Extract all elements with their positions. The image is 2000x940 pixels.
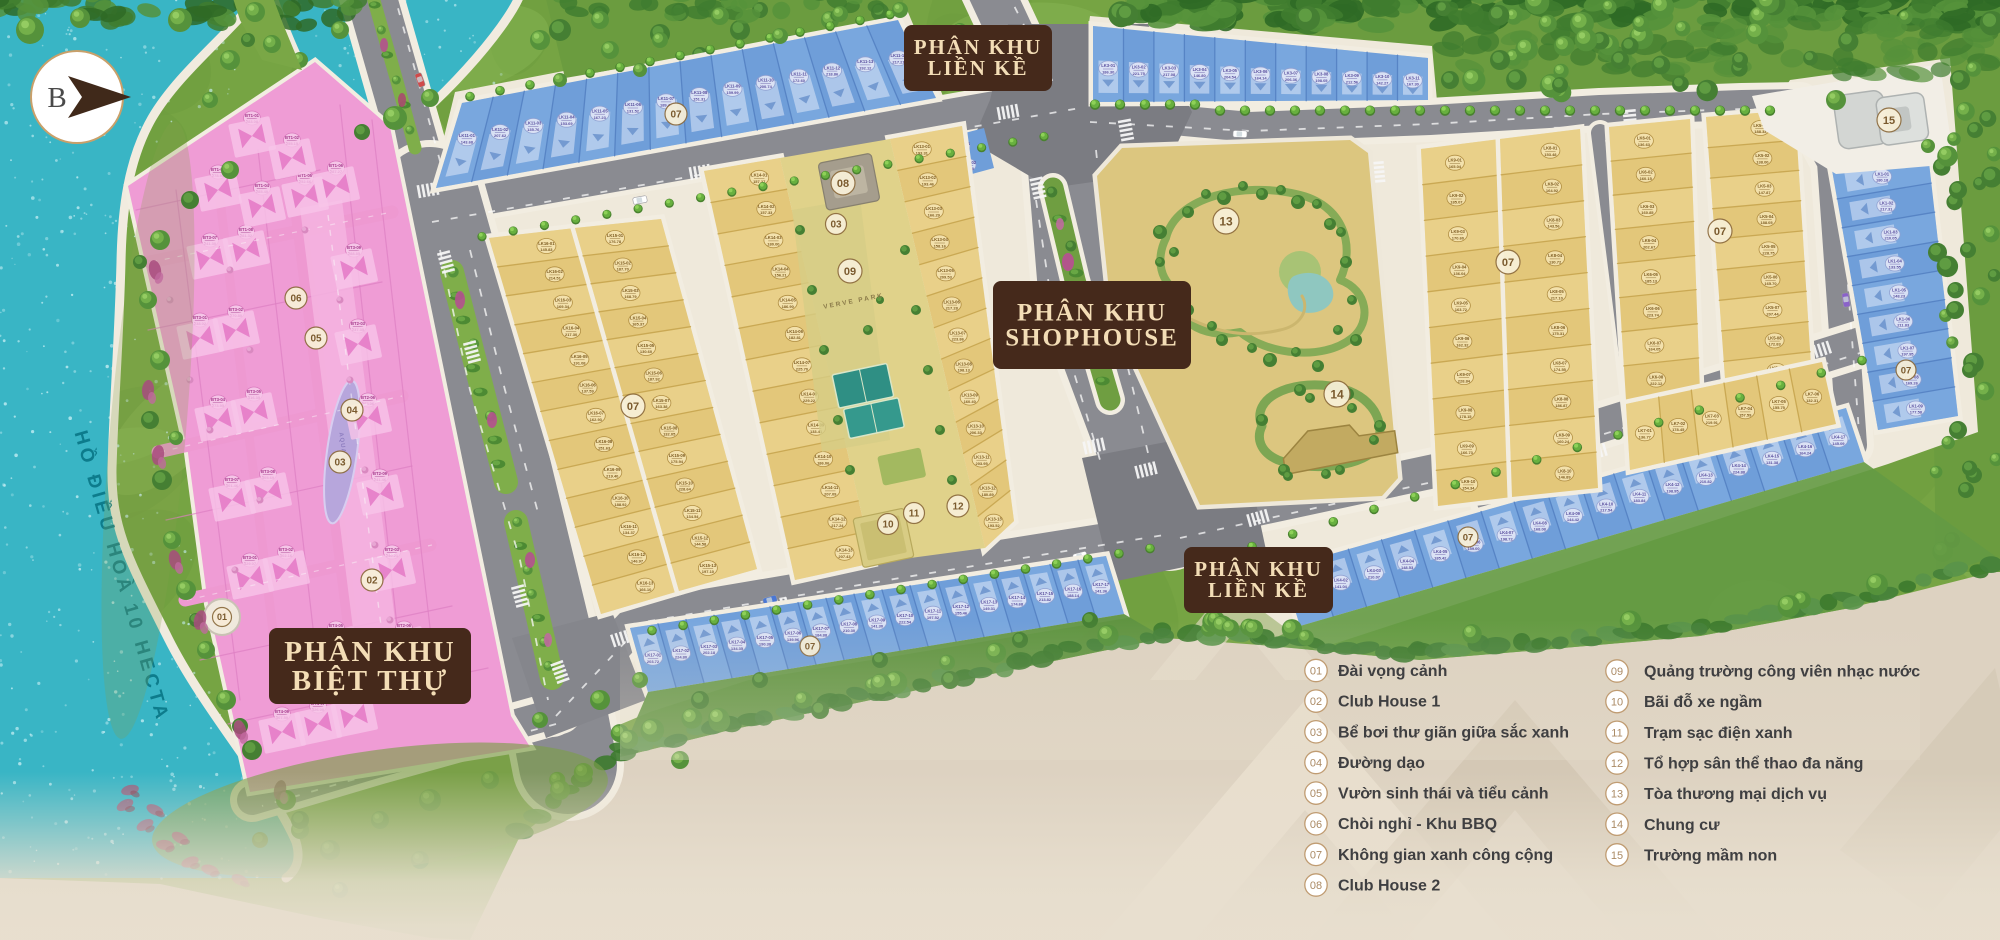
- svg-text:LK9-03: LK9-03: [1451, 229, 1466, 234]
- svg-text:209.53: 209.53: [940, 275, 953, 280]
- svg-text:LK4-13: LK4-13: [1699, 473, 1714, 478]
- svg-text:198.95: 198.95: [1666, 489, 1679, 494]
- svg-text:191.08: 191.08: [573, 360, 586, 365]
- svg-text:LK16-01: LK16-01: [538, 241, 555, 246]
- svg-text:LK16-03: LK16-03: [555, 297, 572, 302]
- svg-text:225.70: 225.70: [796, 367, 809, 372]
- svg-text:147.87: 147.87: [1758, 190, 1771, 195]
- svg-text:Quảng trường công viên nhạc nư: Quảng trường công viên nhạc nước: [1644, 664, 1920, 681]
- svg-text:LK3-08: LK3-08: [1314, 72, 1329, 77]
- svg-text:LK6-07: LK6-07: [1647, 340, 1662, 345]
- svg-text:144.42: 144.42: [1567, 517, 1580, 522]
- svg-text:LK14-01: LK14-01: [751, 173, 768, 178]
- svg-text:141.04: 141.04: [1335, 584, 1348, 589]
- svg-text:136.63: 136.63: [1638, 142, 1651, 147]
- svg-text:192.12: 192.12: [859, 66, 872, 71]
- svg-text:07: 07: [670, 110, 682, 121]
- svg-text:LK4-11: LK4-11: [1633, 492, 1647, 497]
- svg-text:193.46: 193.46: [922, 182, 935, 187]
- svg-text:LK5-03: LK5-03: [1758, 184, 1773, 189]
- svg-text:LK13-13: LK13-13: [985, 517, 1002, 522]
- svg-text:Đường dạo: Đường dạo: [1338, 755, 1425, 772]
- svg-text:182.81: 182.81: [789, 335, 802, 340]
- svg-text:LK4-09: LK4-09: [1566, 511, 1581, 516]
- svg-text:160.85: 160.85: [1641, 210, 1654, 215]
- svg-text:LK4-05: LK4-05: [1433, 549, 1448, 554]
- svg-text:LK15-01: LK15-01: [607, 233, 624, 238]
- svg-text:198.13: 198.13: [958, 368, 971, 373]
- svg-text:136.04: 136.04: [1453, 271, 1466, 276]
- svg-text:164.24: 164.24: [1799, 451, 1812, 456]
- svg-text:BT2-09: BT2-09: [373, 471, 388, 476]
- svg-text:LK11-01: LK11-01: [459, 133, 476, 138]
- svg-text:LK6-08: LK6-08: [1649, 374, 1664, 379]
- svg-text:LK5-05: LK5-05: [1762, 244, 1777, 249]
- svg-text:163.72: 163.72: [1455, 307, 1468, 312]
- svg-text:163.38: 163.38: [655, 404, 668, 409]
- svg-text:BT1-04: BT1-04: [255, 183, 270, 188]
- svg-text:LK13-04: LK13-04: [932, 237, 949, 242]
- svg-text:LK15-08: LK15-08: [661, 425, 678, 430]
- svg-text:203.95: 203.95: [975, 461, 988, 466]
- svg-text:217.30: 217.30: [565, 332, 578, 337]
- svg-text:14: 14: [1330, 387, 1344, 401]
- svg-text:09: 09: [1611, 666, 1623, 678]
- svg-text:LK15-07: LK15-07: [653, 398, 670, 403]
- svg-text:175.31: 175.31: [1552, 331, 1565, 336]
- svg-text:08: 08: [837, 178, 849, 190]
- svg-text:BT2-06: BT2-06: [361, 395, 376, 400]
- svg-text:05: 05: [1310, 788, 1322, 800]
- svg-text:LK5-06: LK5-06: [1764, 275, 1779, 280]
- svg-text:LK6-06: LK6-06: [1646, 306, 1661, 311]
- svg-text:Chòi nghỉ - Khu BBQ: Chòi nghỉ - Khu BBQ: [1338, 816, 1497, 833]
- svg-text:LK9-01: LK9-01: [1448, 158, 1463, 163]
- svg-text:LK8-06: LK8-06: [1551, 325, 1566, 330]
- svg-text:LK15-05: LK15-05: [638, 343, 655, 348]
- svg-text:229.22: 229.22: [803, 398, 816, 403]
- svg-text:LK17-11: LK17-11: [925, 609, 942, 614]
- svg-text:214.51: 214.51: [549, 276, 562, 281]
- svg-text:197.10: 197.10: [702, 569, 715, 574]
- svg-text:Chung cư: Chung cư: [1644, 817, 1720, 834]
- svg-text:LK15-04: LK15-04: [630, 315, 647, 320]
- svg-text:210.07: 210.07: [1368, 574, 1381, 579]
- svg-text:LK17-15: LK17-15: [1037, 591, 1054, 596]
- svg-text:LK11-07: LK11-07: [658, 96, 675, 101]
- svg-text:LK14-11: LK14-11: [822, 485, 839, 490]
- svg-text:11: 11: [909, 509, 920, 520]
- svg-text:160.40: 160.40: [964, 399, 977, 404]
- svg-text:LK14-06: LK14-06: [787, 329, 804, 334]
- svg-text:131.52: 131.52: [627, 109, 640, 114]
- svg-text:07: 07: [1463, 532, 1474, 543]
- svg-text:LK8-04: LK8-04: [1548, 253, 1563, 258]
- svg-text:LK3-07: LK3-07: [1284, 71, 1299, 76]
- svg-text:168.79: 168.79: [624, 294, 637, 299]
- svg-text:12: 12: [1611, 758, 1623, 770]
- svg-text:149.31: 149.31: [983, 606, 996, 611]
- svg-text:228.75: 228.75: [1762, 251, 1775, 256]
- svg-text:188.05: 188.05: [1760, 220, 1773, 225]
- svg-text:145.83: 145.83: [540, 247, 553, 252]
- svg-text:LIỀN KỀ: LIỀN KỀ: [928, 56, 1029, 80]
- svg-text:175.94: 175.94: [671, 459, 684, 464]
- svg-text:06: 06: [1310, 819, 1322, 831]
- svg-text:LK14-05: LK14-05: [780, 298, 797, 303]
- svg-text:166.10: 166.10: [639, 587, 652, 592]
- svg-text:176.78: 176.78: [609, 239, 622, 244]
- svg-text:202.67: 202.67: [1643, 244, 1656, 249]
- svg-text:LK13-03: LK13-03: [926, 206, 943, 211]
- svg-text:03: 03: [334, 458, 346, 469]
- svg-text:170.60: 170.60: [1452, 235, 1465, 240]
- svg-text:BT4-09: BT4-09: [275, 709, 290, 714]
- svg-text:01: 01: [1310, 666, 1322, 678]
- svg-text:187.92: 187.92: [648, 377, 661, 382]
- svg-text:LK15-11: LK15-11: [684, 508, 701, 513]
- svg-text:LK3-11: LK3-11: [1406, 75, 1420, 80]
- svg-text:LK3-02: LK3-02: [1132, 64, 1147, 69]
- svg-text:Trường mầm non: Trường mầm non: [1644, 847, 1777, 864]
- svg-text:186.87: 186.87: [1555, 403, 1568, 408]
- svg-text:204.54: 204.54: [1224, 74, 1237, 79]
- svg-text:144.58: 144.58: [694, 542, 707, 547]
- svg-text:164.92: 164.92: [1546, 188, 1559, 193]
- svg-text:211.83: 211.83: [1897, 323, 1910, 328]
- svg-text:219.91: 219.91: [1706, 420, 1719, 425]
- svg-text:143.56: 143.56: [1547, 224, 1560, 229]
- svg-text:07: 07: [1310, 849, 1322, 861]
- svg-text:165.70: 165.70: [1764, 281, 1777, 286]
- svg-text:03: 03: [1310, 727, 1322, 739]
- svg-text:198.05: 198.05: [1315, 78, 1328, 83]
- svg-text:154.34: 154.34: [1462, 486, 1475, 491]
- svg-text:156.21: 156.21: [774, 273, 787, 278]
- svg-text:14: 14: [1611, 819, 1623, 831]
- svg-text:217.54: 217.54: [1600, 508, 1613, 513]
- svg-text:LK16-05: LK16-05: [571, 354, 588, 359]
- svg-text:137.59: 137.59: [581, 389, 594, 394]
- svg-text:Không gian xanh công cộng: Không gian xanh công cộng: [1338, 847, 1553, 864]
- svg-text:LK13-10: LK13-10: [968, 423, 985, 428]
- svg-text:LK16-11: LK16-11: [621, 524, 638, 529]
- svg-text:03: 03: [830, 220, 842, 231]
- svg-text:LK6-04: LK6-04: [1642, 238, 1657, 243]
- svg-text:LK16-04: LK16-04: [563, 326, 580, 331]
- svg-text:BT3-01: BT3-01: [243, 555, 258, 560]
- svg-text:183.84: 183.84: [1633, 498, 1646, 503]
- svg-text:LIỀN KỀ: LIỀN KỀ: [1208, 578, 1309, 602]
- svg-text:185.42: 185.42: [1434, 555, 1447, 560]
- svg-text:Tòa thương mại dịch vụ: Tòa thương mại dịch vụ: [1644, 786, 1827, 803]
- svg-text:Vườn sinh thái và tiểu cảnh: Vườn sinh thái và tiểu cảnh: [1338, 785, 1549, 803]
- svg-text:LK6-03: LK6-03: [1640, 204, 1655, 209]
- svg-text:LK13-12: LK13-12: [979, 486, 996, 491]
- svg-text:BT2-03: BT2-03: [385, 547, 400, 552]
- svg-text:LK8-05: LK8-05: [1550, 289, 1565, 294]
- svg-text:SHOPHOUSE: SHOPHOUSE: [1005, 325, 1179, 352]
- svg-text:166.73: 166.73: [1461, 450, 1474, 455]
- svg-text:LK9-08: LK9-08: [1458, 408, 1473, 413]
- svg-text:197.52: 197.52: [927, 615, 940, 620]
- svg-text:186.06: 186.06: [817, 460, 830, 465]
- svg-text:LK7-06: LK7-06: [1805, 392, 1820, 397]
- svg-text:210.05: 210.05: [1884, 236, 1897, 241]
- svg-text:212.56: 212.56: [1346, 79, 1359, 84]
- svg-text:146.80: 146.80: [1193, 73, 1206, 78]
- svg-text:BT3-01: BT3-01: [193, 315, 208, 320]
- svg-text:213.82: 213.82: [1039, 597, 1052, 602]
- svg-text:148.23: 148.23: [1893, 294, 1906, 299]
- svg-text:148.53: 148.53: [1401, 565, 1414, 570]
- svg-text:228.84: 228.84: [1458, 378, 1471, 383]
- svg-text:BT3-07: BT3-07: [225, 477, 240, 482]
- svg-text:210.82: 210.82: [1700, 479, 1713, 484]
- svg-text:206.33: 206.33: [970, 430, 983, 435]
- svg-text:130.72: 130.72: [1549, 260, 1562, 265]
- svg-text:LK4-14: LK4-14: [1732, 463, 1747, 468]
- svg-text:LK17-17: LK17-17: [1093, 582, 1110, 587]
- svg-text:15: 15: [1611, 850, 1623, 862]
- svg-text:172.60: 172.60: [793, 78, 806, 83]
- svg-text:206.36: 206.36: [1285, 77, 1298, 82]
- svg-text:BT3-02: BT3-02: [279, 547, 294, 552]
- svg-text:160.24: 160.24: [1557, 439, 1570, 444]
- svg-text:04: 04: [1310, 758, 1322, 770]
- svg-text:Club House 1: Club House 1: [1338, 694, 1440, 711]
- svg-text:134.54: 134.54: [686, 514, 699, 519]
- svg-text:LK7-02: LK7-02: [1671, 421, 1686, 426]
- svg-text:15: 15: [1883, 115, 1895, 127]
- svg-text:197.95: 197.95: [1901, 352, 1914, 357]
- svg-text:153.48: 153.48: [1544, 152, 1557, 157]
- svg-text:BT3-04: BT3-04: [211, 397, 226, 402]
- svg-text:151.63: 151.63: [598, 445, 611, 450]
- svg-text:LK4-10: LK4-10: [1599, 501, 1614, 506]
- svg-text:158.16: 158.16: [934, 244, 947, 249]
- svg-text:132.31: 132.31: [1806, 398, 1819, 403]
- svg-text:BT2-03: BT2-03: [351, 321, 366, 326]
- svg-text:08: 08: [1310, 880, 1322, 892]
- svg-text:Đài vọng cảnh: Đài vọng cảnh: [1338, 663, 1447, 680]
- svg-text:217.10: 217.10: [1551, 295, 1564, 300]
- svg-text:222.12: 222.12: [1650, 381, 1663, 386]
- svg-text:LK5-07: LK5-07: [1766, 305, 1781, 310]
- svg-text:LK1-09: LK1-09: [1909, 403, 1924, 408]
- svg-text:131.38: 131.38: [1766, 460, 1779, 465]
- svg-text:LK4-16: LK4-16: [1798, 444, 1813, 449]
- svg-text:Bãi đỗ xe ngầm: Bãi đỗ xe ngầm: [1644, 692, 1762, 711]
- svg-text:LK14-02: LK14-02: [758, 204, 775, 209]
- svg-text:LK4-17: LK4-17: [1831, 435, 1846, 440]
- svg-text:146.89: 146.89: [1558, 475, 1571, 480]
- svg-text:LK5-02: LK5-02: [1755, 153, 1770, 158]
- svg-text:178.45: 178.45: [1672, 427, 1685, 432]
- svg-text:164.05: 164.05: [1648, 347, 1661, 352]
- svg-text:159.99: 159.99: [726, 90, 739, 95]
- svg-text:LK9-02: LK9-02: [1449, 193, 1464, 198]
- svg-text:LK3-05: LK3-05: [1223, 68, 1238, 73]
- svg-text:LK11-02: LK11-02: [492, 127, 509, 132]
- svg-text:186.90: 186.90: [782, 304, 795, 309]
- svg-text:207.09: 207.09: [824, 492, 837, 497]
- svg-text:LK13-11: LK13-11: [974, 454, 991, 459]
- svg-text:BT3-02: BT3-02: [229, 307, 244, 312]
- svg-text:LK17-13: LK17-13: [981, 600, 998, 605]
- svg-text:LK8-07: LK8-07: [1553, 361, 1568, 366]
- svg-text:LK15-06: LK15-06: [646, 370, 663, 375]
- svg-text:LK15-13: LK15-13: [700, 563, 717, 568]
- svg-text:169.34: 169.34: [557, 304, 570, 309]
- svg-text:178.15: 178.15: [1459, 414, 1472, 419]
- svg-text:LK14-04: LK14-04: [772, 266, 789, 271]
- svg-text:188.92: 188.92: [614, 502, 627, 507]
- svg-text:146.97: 146.97: [631, 559, 644, 564]
- svg-text:LK8-01: LK8-01: [1543, 146, 1558, 151]
- svg-text:180.00: 180.00: [767, 242, 780, 247]
- svg-text:LK1-03: LK1-03: [1884, 229, 1899, 234]
- svg-text:143.68: 143.68: [461, 139, 474, 144]
- svg-text:LK11-06: LK11-06: [625, 102, 642, 107]
- svg-text:LK11-03: LK11-03: [525, 121, 542, 126]
- svg-text:PHÂN KHU: PHÂN KHU: [284, 635, 455, 668]
- svg-text:04: 04: [346, 406, 358, 417]
- svg-text:167.23: 167.23: [594, 115, 607, 120]
- svg-text:166.29: 166.29: [928, 213, 941, 218]
- svg-text:LK15-03: LK15-03: [622, 288, 639, 293]
- svg-text:LK16-09: LK16-09: [604, 467, 621, 472]
- svg-text:207.43: 207.43: [838, 554, 851, 559]
- svg-text:LK11-08: LK11-08: [691, 90, 708, 95]
- svg-text:LK4-03: LK4-03: [1367, 568, 1382, 573]
- svg-text:160.15: 160.15: [1640, 176, 1653, 181]
- svg-text:09: 09: [844, 266, 856, 278]
- svg-text:LK7-03: LK7-03: [1705, 414, 1720, 419]
- svg-text:LK14-03: LK14-03: [765, 235, 782, 240]
- svg-text:BT3-05: BT3-05: [247, 389, 262, 394]
- svg-text:LK16-07: LK16-07: [588, 411, 605, 416]
- svg-text:223.86: 223.86: [952, 337, 965, 342]
- svg-text:LK5-08: LK5-08: [1768, 335, 1783, 340]
- svg-text:217.24: 217.24: [831, 523, 844, 528]
- svg-text:LK9-09: LK9-09: [1460, 443, 1475, 448]
- svg-text:05: 05: [310, 334, 322, 345]
- svg-text:162.93: 162.93: [590, 417, 603, 422]
- svg-text:13: 13: [1219, 214, 1233, 228]
- svg-text:LK17-14: LK17-14: [1009, 595, 1026, 600]
- svg-text:174.68: 174.68: [1011, 602, 1024, 607]
- svg-text:02: 02: [1310, 696, 1322, 708]
- svg-text:LK1-06: LK1-06: [1896, 316, 1911, 321]
- svg-text:LK8-02: LK8-02: [1545, 181, 1560, 186]
- svg-text:155.75: 155.75: [1773, 405, 1786, 410]
- svg-text:165.04: 165.04: [1449, 164, 1462, 169]
- svg-text:224.88: 224.88: [1733, 470, 1746, 475]
- svg-text:223.74: 223.74: [1647, 313, 1660, 318]
- svg-text:136.77: 136.77: [1639, 435, 1652, 440]
- svg-text:153.69: 153.69: [560, 121, 573, 126]
- svg-text:164.14: 164.14: [1254, 76, 1267, 81]
- svg-text:BIỆT THỰ: BIỆT THỰ: [292, 664, 449, 697]
- svg-text:LK11-11: LK11-11: [791, 71, 808, 76]
- svg-text:12: 12: [952, 502, 964, 513]
- svg-text:207.44: 207.44: [1766, 311, 1779, 316]
- svg-text:LK3-04: LK3-04: [1193, 67, 1208, 72]
- svg-text:LK9-05: LK9-05: [1454, 300, 1469, 305]
- svg-text:LK13-09: LK13-09: [962, 392, 979, 397]
- svg-text:LK17-16: LK17-16: [1065, 586, 1082, 591]
- svg-text:LK4-08: LK4-08: [1533, 520, 1548, 525]
- svg-text:172.83: 172.83: [1768, 342, 1781, 347]
- svg-text:LK1-04: LK1-04: [1888, 258, 1903, 263]
- svg-text:LK13-05: LK13-05: [938, 268, 955, 273]
- svg-text:LK14-12: LK14-12: [829, 516, 846, 521]
- svg-text:LK11-13: LK11-13: [857, 59, 874, 64]
- svg-text:BT4-05: BT4-05: [329, 623, 344, 628]
- svg-text:169.26: 169.26: [1906, 381, 1919, 386]
- svg-text:LK11-04: LK11-04: [558, 115, 575, 120]
- svg-text:207.62: 207.62: [494, 133, 507, 138]
- svg-text:01: 01: [217, 612, 227, 622]
- svg-text:LK14-13: LK14-13: [836, 548, 853, 553]
- svg-text:LK15-10: LK15-10: [677, 480, 694, 485]
- svg-text:LK15-02: LK15-02: [615, 260, 632, 265]
- svg-text:LK9-06: LK9-06: [1455, 336, 1470, 341]
- svg-text:198.72: 198.72: [1500, 536, 1513, 541]
- svg-text:LK9-07: LK9-07: [1457, 372, 1472, 377]
- svg-text:218.86: 218.86: [826, 72, 839, 77]
- svg-text:LK1-05: LK1-05: [1892, 287, 1907, 292]
- svg-text:Trạm sạc điện xanh: Trạm sạc điện xanh: [1644, 725, 1793, 742]
- svg-text:Tổ hợp sân thể thao đa năng: Tổ hợp sân thể thao đa năng: [1644, 755, 1863, 773]
- svg-text:LK4-04: LK4-04: [1400, 558, 1415, 563]
- svg-text:02: 02: [366, 576, 378, 587]
- svg-text:157.33: 157.33: [760, 210, 773, 215]
- svg-text:LK1-02: LK1-02: [1879, 200, 1894, 205]
- svg-text:06: 06: [290, 294, 302, 305]
- svg-text:LK13-02: LK13-02: [920, 175, 937, 180]
- svg-text:LK8-09: LK8-09: [1556, 432, 1571, 437]
- svg-text:LK5-04: LK5-04: [1760, 214, 1775, 219]
- svg-text:11: 11: [1611, 727, 1622, 739]
- svg-text:157.59: 157.59: [1739, 413, 1752, 418]
- svg-text:LK15-09: LK15-09: [669, 453, 686, 458]
- svg-text:LK3-06: LK3-06: [1254, 69, 1269, 74]
- svg-text:LK6-05: LK6-05: [1644, 272, 1659, 277]
- svg-text:217.08: 217.08: [1163, 72, 1176, 77]
- svg-text:07: 07: [1502, 257, 1514, 269]
- svg-text:219.40: 219.40: [606, 474, 619, 479]
- svg-text:LK14-07: LK14-07: [794, 360, 811, 365]
- svg-text:LK11-09: LK11-09: [724, 84, 741, 89]
- svg-text:LK6-02: LK6-02: [1639, 170, 1654, 175]
- svg-text:185.13: 185.13: [1645, 278, 1658, 283]
- svg-text:07: 07: [627, 401, 639, 413]
- svg-text:132.05: 132.05: [663, 432, 676, 437]
- svg-text:LK15-12: LK15-12: [692, 535, 709, 540]
- svg-text:228.64: 228.64: [679, 487, 692, 492]
- svg-text:142.27: 142.27: [1376, 81, 1389, 86]
- svg-text:BT3-09: BT3-09: [347, 245, 362, 250]
- svg-text:BT3-08: BT3-08: [261, 469, 276, 474]
- svg-text:200.74: 200.74: [760, 84, 773, 89]
- svg-text:LK11-05: LK11-05: [592, 108, 609, 113]
- svg-text:141.36: 141.36: [1095, 588, 1108, 593]
- svg-text:LK7-05: LK7-05: [1772, 399, 1787, 404]
- svg-text:130.60: 130.60: [640, 349, 653, 354]
- svg-text:155.46: 155.46: [955, 611, 968, 616]
